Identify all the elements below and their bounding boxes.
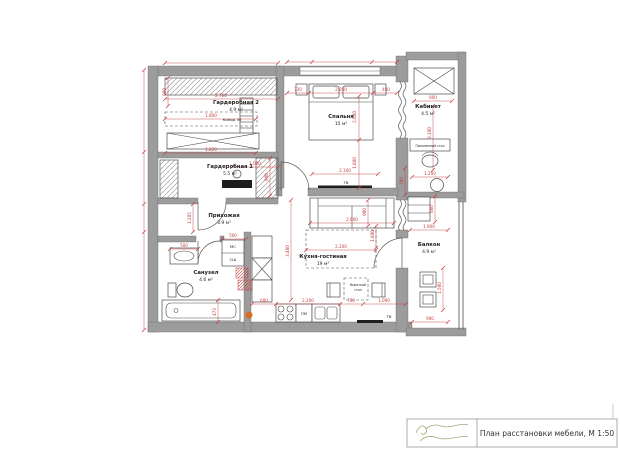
dimension-value: 1.090 — [378, 298, 390, 303]
pullout-table-label-1: Выкатной — [350, 283, 366, 287]
dimension-value: 900 — [162, 88, 167, 96]
kitchen-sink — [312, 304, 340, 322]
wall-left — [148, 66, 158, 332]
bath-door-arc — [198, 241, 220, 263]
office-side-table — [431, 179, 444, 192]
dimension-value: 2.200 — [335, 244, 347, 249]
title-block: План расстановки мебели, М 1:50 — [407, 404, 617, 447]
dimension-value: 450 — [382, 87, 390, 92]
dimension-value: 2.200 — [302, 298, 314, 303]
room-label-hallway: Прихожая — [208, 213, 239, 219]
dimension-value: 1.800 — [205, 113, 217, 118]
floor-plan-drawing: 2.7009001.8001.8201.0009007202.0504502.0… — [0, 0, 620, 450]
toilet-tank — [168, 283, 176, 297]
room-label-bedroom: Спальня — [328, 114, 353, 120]
dining-chair-right — [372, 283, 385, 297]
room-label-balcony: Балкон — [418, 242, 441, 248]
tv-label-living: ТВ — [386, 314, 392, 319]
dimension-value: 1.200 — [424, 171, 436, 176]
tv-console-bedroom — [318, 186, 372, 189]
dimension-value: 2.100 — [339, 168, 351, 173]
room-area-kitchen-living: 19 м² — [317, 261, 330, 267]
dishwasher-label: ПМ — [301, 311, 307, 316]
washer-label: МС — [230, 244, 236, 249]
room-area-wardrobe1: 5.5 м² — [223, 171, 237, 177]
desk-chair — [422, 155, 438, 167]
wardrobe1-closet-left — [160, 160, 178, 198]
dining-chair-left — [327, 283, 340, 297]
dimension-value: 800 — [429, 205, 434, 213]
dimension-value: 720 — [294, 87, 302, 92]
room-area-balcony: 4.9 м² — [422, 249, 436, 255]
dimension-value: 1.900 — [423, 224, 435, 229]
dimension-value: 2.600 — [346, 217, 358, 222]
vent-shaft-2 — [238, 280, 252, 290]
kitchen-tall-unit-1 — [252, 236, 272, 258]
dimension-value: 1.600 — [352, 157, 357, 169]
wall-bath-north-a — [158, 236, 196, 242]
balcony-stool-1 — [420, 272, 436, 287]
dimension-value: 700 — [347, 298, 355, 303]
tv-console-living — [357, 320, 383, 323]
window-wave-balcony-b — [403, 200, 406, 230]
balcony-stool-2 — [420, 292, 436, 307]
room-area-office: 4.5 м² — [421, 111, 435, 117]
room-area-bathroom: 4.6 м² — [199, 277, 213, 283]
balcony-door-arc — [374, 238, 402, 268]
pillow-right — [343, 86, 369, 98]
pullout-table-label-2: стол — [354, 288, 361, 292]
floor-plan-page: 2.7009001.8001.8201.0009007202.0504502.0… — [0, 0, 620, 450]
wall-bottom — [148, 322, 412, 332]
dimension-value: 2.050 — [335, 87, 347, 92]
dimension-value: 1.205 — [187, 212, 192, 224]
dimension-value: 500 — [229, 233, 237, 238]
room-label-office: Кабинет — [415, 103, 442, 110]
window-wave-balcony-a — [399, 200, 402, 230]
toilet-bowl — [177, 283, 193, 297]
wall-hall-north-a — [158, 198, 198, 204]
window-wave-office-a — [399, 82, 402, 138]
dimension-value: 700 — [399, 177, 404, 185]
room-label-wardrobe1: Гардеробная 1 — [207, 163, 253, 170]
title-block-caption: План расстановки мебели, М 1:50 — [480, 429, 614, 438]
dimension-value: 1.500 — [437, 282, 442, 294]
room-area-wardrobe2: 4.9 м² — [229, 107, 243, 113]
window-wave-office-b — [403, 82, 406, 138]
dimension-value: 900 — [264, 173, 269, 181]
wall-bedroom-south-b — [308, 188, 398, 196]
room-area-bedroom: 15 м² — [335, 121, 348, 127]
dimension-value: 1.820 — [205, 147, 217, 152]
wall-office-top — [406, 52, 464, 60]
dimension-value: 2.700 — [215, 93, 227, 98]
room-area-hallway: 3.9 м² — [217, 220, 231, 226]
room-label-bathroom: Санузел — [193, 270, 218, 276]
wall-balcony-bottom — [406, 328, 466, 336]
desk-label: Письменный стол — [416, 144, 445, 148]
tv-label-bedroom: ТВ — [343, 180, 349, 185]
dimension-value: 900 — [426, 316, 434, 321]
dimension-value: 3.480 — [285, 245, 290, 257]
vent-shaft-1 — [236, 268, 248, 278]
room-label-kitchen-living: Кухня-гостиная — [299, 254, 346, 260]
dryer-label: СШ — [230, 257, 237, 262]
dimension-value: 3.100 — [427, 127, 432, 139]
wall-right-divider-low — [396, 268, 408, 332]
dimension-value: 500 — [180, 243, 188, 248]
dimension-value: 900 — [362, 208, 367, 216]
room-label-wardrobe2: Гардеробная 2 — [213, 99, 259, 106]
dimension-value: 1.600 — [370, 230, 375, 242]
komod-label: Комод 50 — [223, 117, 242, 122]
orange-marker-dot — [246, 312, 253, 319]
dressing-table — [222, 180, 252, 188]
dimension-value: 473 — [212, 308, 217, 316]
wall-office-right — [458, 52, 466, 202]
balcony-cabinet — [408, 197, 430, 221]
wall-right-divider-stub — [396, 230, 408, 238]
dimension-value: 600 — [260, 298, 268, 303]
bedroom-door-arc — [281, 162, 309, 190]
dimension-value: 900 — [429, 95, 437, 100]
wall-hall-north-b — [226, 198, 278, 204]
